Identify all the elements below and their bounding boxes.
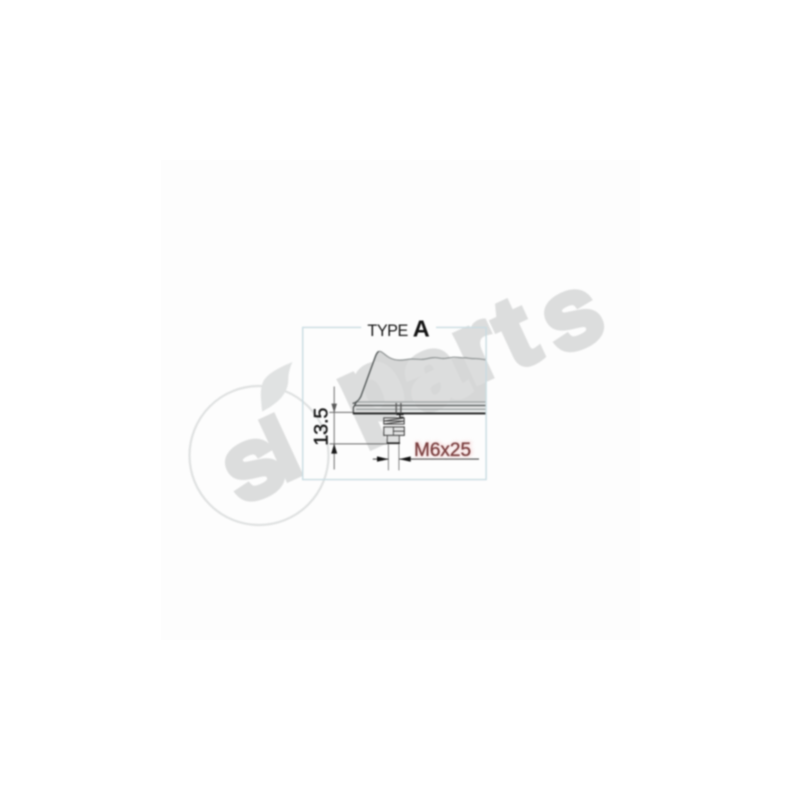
svg-text:M6x25: M6x25	[414, 440, 471, 461]
svg-text:TYPE: TYPE	[367, 322, 408, 340]
svg-text:A: A	[413, 315, 430, 341]
svg-text:13.5: 13.5	[311, 407, 333, 445]
